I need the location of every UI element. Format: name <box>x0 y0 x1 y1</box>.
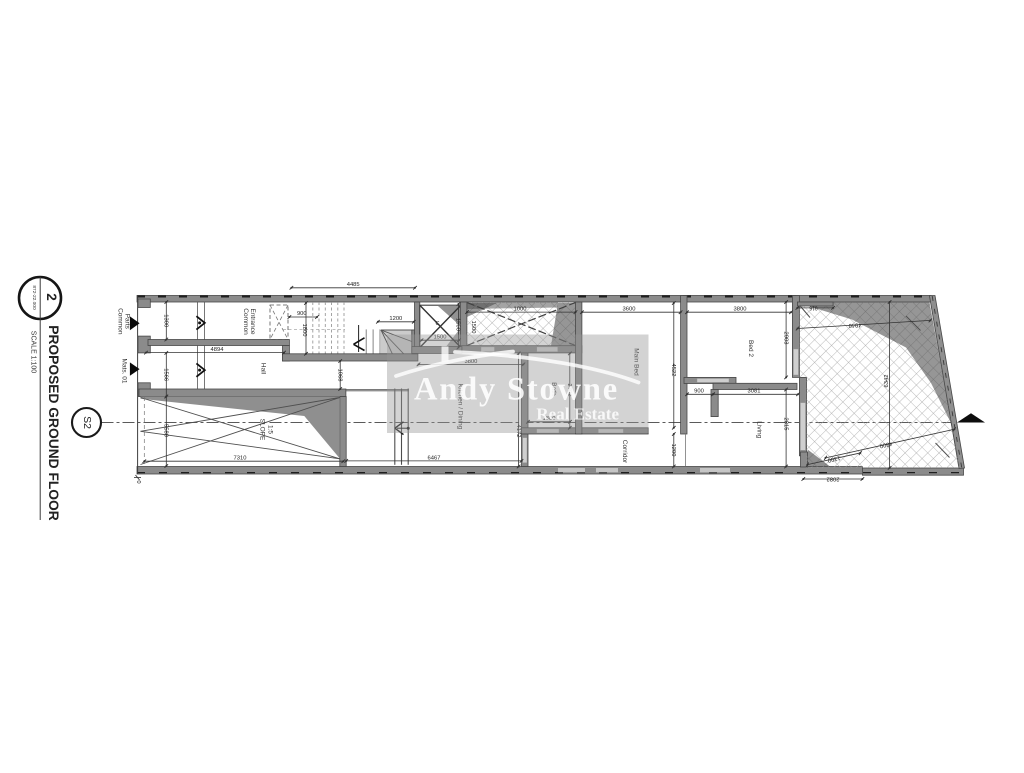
svg-text:S2: S2 <box>81 416 93 429</box>
svg-text:SCALE 1:100: SCALE 1:100 <box>30 331 37 374</box>
svg-text:1800: 1800 <box>301 324 307 337</box>
svg-text:1:5: 1:5 <box>267 425 274 434</box>
svg-text:4522: 4522 <box>670 364 676 377</box>
svg-text:Real Estate: Real Estate <box>536 405 619 424</box>
svg-text:Hall: Hall <box>260 363 267 375</box>
svg-text:1000: 1000 <box>514 307 527 313</box>
svg-text:SLOPE: SLOPE <box>259 419 266 441</box>
svg-text:0: 0 <box>135 480 141 483</box>
svg-text:Bed 2: Bed 2 <box>747 340 754 357</box>
svg-text:900: 900 <box>297 311 307 317</box>
svg-text:1566: 1566 <box>163 368 169 381</box>
svg-text:1068: 1068 <box>337 369 343 382</box>
svg-text:1200: 1200 <box>670 444 676 457</box>
svg-text:1300: 1300 <box>163 314 169 327</box>
svg-text:Living: Living <box>755 421 762 438</box>
svg-text:2903: 2903 <box>783 332 789 345</box>
svg-text:Corridor: Corridor <box>621 440 628 464</box>
svg-text:3600: 3600 <box>623 307 636 313</box>
svg-text:3081: 3081 <box>748 389 761 395</box>
svg-text:3800: 3800 <box>734 307 747 313</box>
svg-text:6467: 6467 <box>428 455 441 461</box>
svg-text:PROPOSED GROUND FLOOR: PROPOSED GROUND FLOOR <box>46 325 61 521</box>
svg-text:6342: 6342 <box>884 375 890 388</box>
svg-text:872-22.000: 872-22.000 <box>31 285 37 310</box>
svg-text:4894: 4894 <box>211 347 225 353</box>
svg-text:Andy Stowne: Andy Stowne <box>414 372 619 408</box>
svg-text:Common: Common <box>116 308 123 335</box>
svg-text:7310: 7310 <box>234 456 247 462</box>
svg-text:Mats. 01: Mats. 01 <box>121 359 128 384</box>
svg-text:Entrance: Entrance <box>249 308 256 334</box>
svg-text:4940: 4940 <box>848 321 861 328</box>
svg-text:2082: 2082 <box>827 476 840 482</box>
svg-text:900: 900 <box>694 389 704 395</box>
svg-text:2: 2 <box>44 293 59 301</box>
svg-text:4485: 4485 <box>347 282 360 288</box>
svg-text:5580: 5580 <box>163 424 169 437</box>
svg-text:1500: 1500 <box>454 318 460 331</box>
svg-text:916: 916 <box>809 304 818 310</box>
svg-text:2815: 2815 <box>783 418 789 431</box>
svg-text:Parts: Parts <box>124 314 131 330</box>
svg-text:1200: 1200 <box>389 316 402 322</box>
svg-text:1500: 1500 <box>470 321 476 334</box>
svg-text:Common: Common <box>242 308 249 335</box>
svg-text:C: C <box>436 321 440 327</box>
